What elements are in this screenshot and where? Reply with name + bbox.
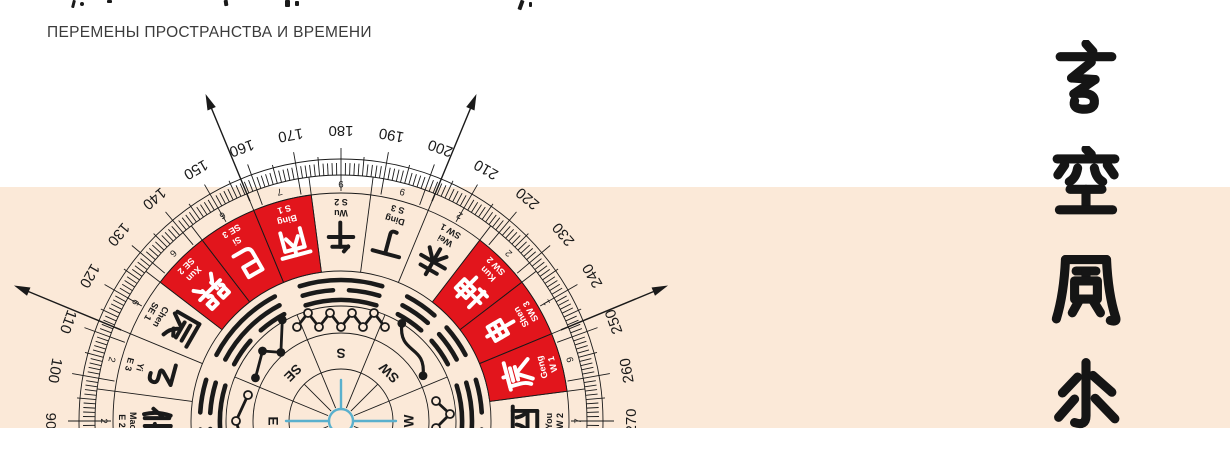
svg-text:S: S (336, 345, 345, 360)
svg-text:9: 9 (565, 355, 577, 363)
svg-text:190: 190 (378, 124, 406, 145)
svg-text:7: 7 (275, 185, 283, 197)
svg-text:S 3: S 3 (390, 203, 406, 216)
svg-text:100: 100 (44, 357, 65, 385)
hanzi-shui-glyph: 水 (1048, 358, 1124, 434)
svg-text:230: 230 (549, 219, 578, 249)
svg-text:E: E (265, 416, 280, 425)
svg-text:2: 2 (503, 247, 515, 259)
svg-text:Wu: Wu (334, 208, 348, 218)
hanzi-xuan-glyph: 玄 (1048, 40, 1124, 116)
svg-text:150: 150 (181, 156, 211, 183)
svg-text:2: 2 (105, 355, 117, 363)
hanzi-kong-glyph: 空 (1048, 146, 1124, 222)
svg-text:You: You (544, 413, 554, 429)
svg-text:260: 260 (617, 357, 638, 385)
svg-text:220: 220 (513, 184, 543, 213)
svg-text:S 2: S 2 (334, 197, 348, 207)
svg-text:E 3: E 3 (123, 356, 136, 372)
svg-text:140: 140 (139, 184, 169, 213)
svg-text:W 2: W 2 (555, 413, 565, 429)
svg-text:W: W (402, 414, 417, 427)
hanzi-feng-glyph: 風 (1048, 252, 1124, 328)
svg-text:170: 170 (277, 124, 305, 145)
svg-text:Mao: Mao (128, 412, 138, 431)
luopan-compass-image: ESESSWWJiaE 11MaoE 22YiE 32ChenSE 16XunS… (0, 0, 700, 448)
svg-text:Yi: Yi (134, 362, 146, 372)
svg-text:180: 180 (328, 122, 353, 139)
svg-text:270: 270 (623, 408, 640, 433)
svg-text:SW: SW (376, 360, 402, 386)
svg-text:E 2: E 2 (117, 414, 127, 428)
svg-text:130: 130 (104, 219, 133, 249)
svg-text:210: 210 (471, 156, 501, 183)
svg-text:SE: SE (281, 361, 304, 384)
svg-text:90: 90 (42, 413, 59, 430)
svg-text:6: 6 (167, 247, 179, 259)
svg-text:240: 240 (579, 261, 606, 291)
svg-text:120: 120 (76, 261, 103, 291)
svg-text:9: 9 (399, 185, 407, 197)
vertical-chinese-title: 玄空風水 (1048, 40, 1126, 464)
